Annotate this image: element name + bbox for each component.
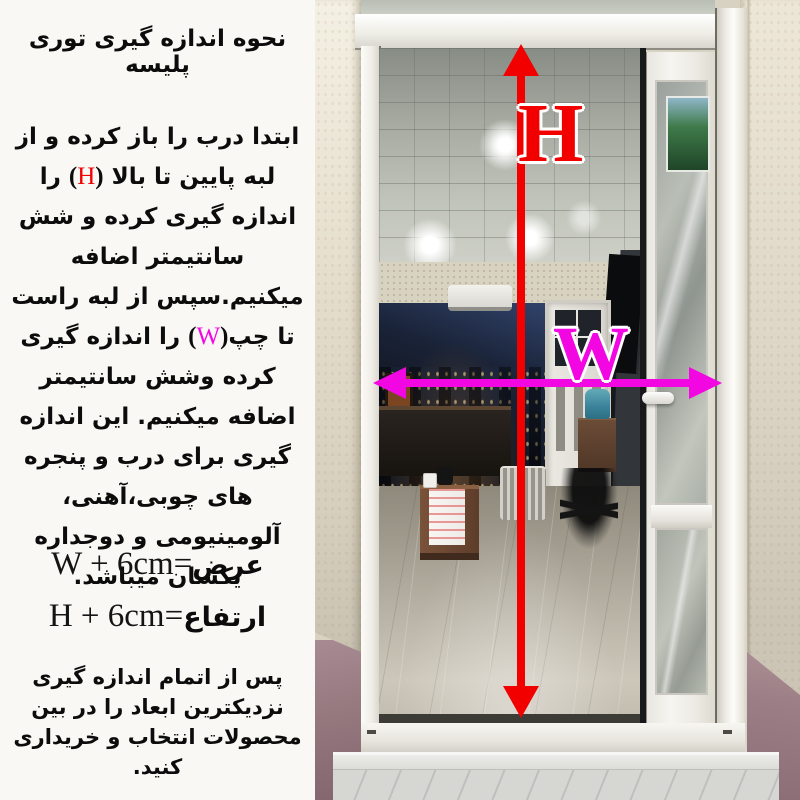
width-ref: (W): [188, 323, 228, 350]
down-arrowhead-icon: [503, 686, 539, 718]
table-item: [437, 467, 453, 485]
door-frame-top: [355, 14, 745, 50]
threshold-notch: [367, 730, 376, 734]
mug: [423, 473, 437, 488]
left-arrowhead-icon: [373, 367, 406, 399]
instruction-panel: نحوه اندازه گیری توری پلیسه ابتدا درب را…: [0, 0, 315, 800]
air-conditioner: [448, 285, 512, 311]
chair: [560, 468, 618, 550]
marble-step-top: [333, 752, 779, 769]
equals-sign: =: [174, 546, 193, 582]
right-arrowhead-icon: [689, 367, 722, 399]
width-letter: W: [196, 323, 220, 350]
instructions-text-2: را اندازه گیری کرده و شش سانتیمتر اضافه …: [11, 164, 303, 350]
green-picture: [666, 96, 710, 172]
outdoor-wall-right: [740, 0, 800, 695]
water-cooler-stand: [578, 418, 616, 472]
desk-calendar: [429, 489, 465, 545]
page-title: نحوه اندازه گیری توری پلیسه: [0, 26, 315, 78]
door-mid-rail: [651, 505, 712, 528]
up-arrowhead-icon: [503, 44, 539, 76]
door-photo: H W: [315, 0, 800, 800]
threshold: [361, 723, 745, 752]
height-formula-label: ارتفاع: [183, 602, 266, 633]
paren-open: (: [69, 163, 77, 190]
height-ref: (H): [69, 163, 104, 190]
width-formula-row: عرض=W + 6cm: [0, 538, 315, 590]
width-arrow-shaft: [405, 379, 691, 387]
door-handle: [642, 392, 674, 404]
purchase-note: پس از اتمام اندازه گیری نزدیکترین ابعاد …: [0, 662, 315, 782]
height-formula-expression: H + 6cm: [49, 590, 165, 642]
height-letter: H: [77, 163, 95, 190]
door-frame-left-jamb: [361, 46, 381, 752]
width-label: W: [553, 316, 629, 392]
width-formula-expression: W + 6cm: [51, 538, 173, 590]
outdoor-wall-left: [315, 0, 361, 652]
threshold-notch: [723, 730, 732, 734]
height-formula-row: ارتفاع=H + 6cm: [0, 590, 315, 642]
formula-list: عرض=W + 6cm ارتفاع=H + 6cm: [0, 538, 315, 642]
equals-sign: =: [165, 598, 184, 634]
width-formula-label: عرض: [192, 550, 264, 581]
measure-instructions: ابتدا درب را باز کرده و از لبه پایین تا …: [0, 117, 315, 597]
paren-close: ): [95, 163, 103, 190]
ceiling-with-lights: [379, 48, 640, 263]
door-lower-glass: [655, 528, 708, 695]
door-upper-glass: [655, 80, 708, 505]
marble-step-face: [333, 769, 779, 800]
office-desk: [379, 406, 511, 476]
height-label: H: [518, 92, 583, 176]
